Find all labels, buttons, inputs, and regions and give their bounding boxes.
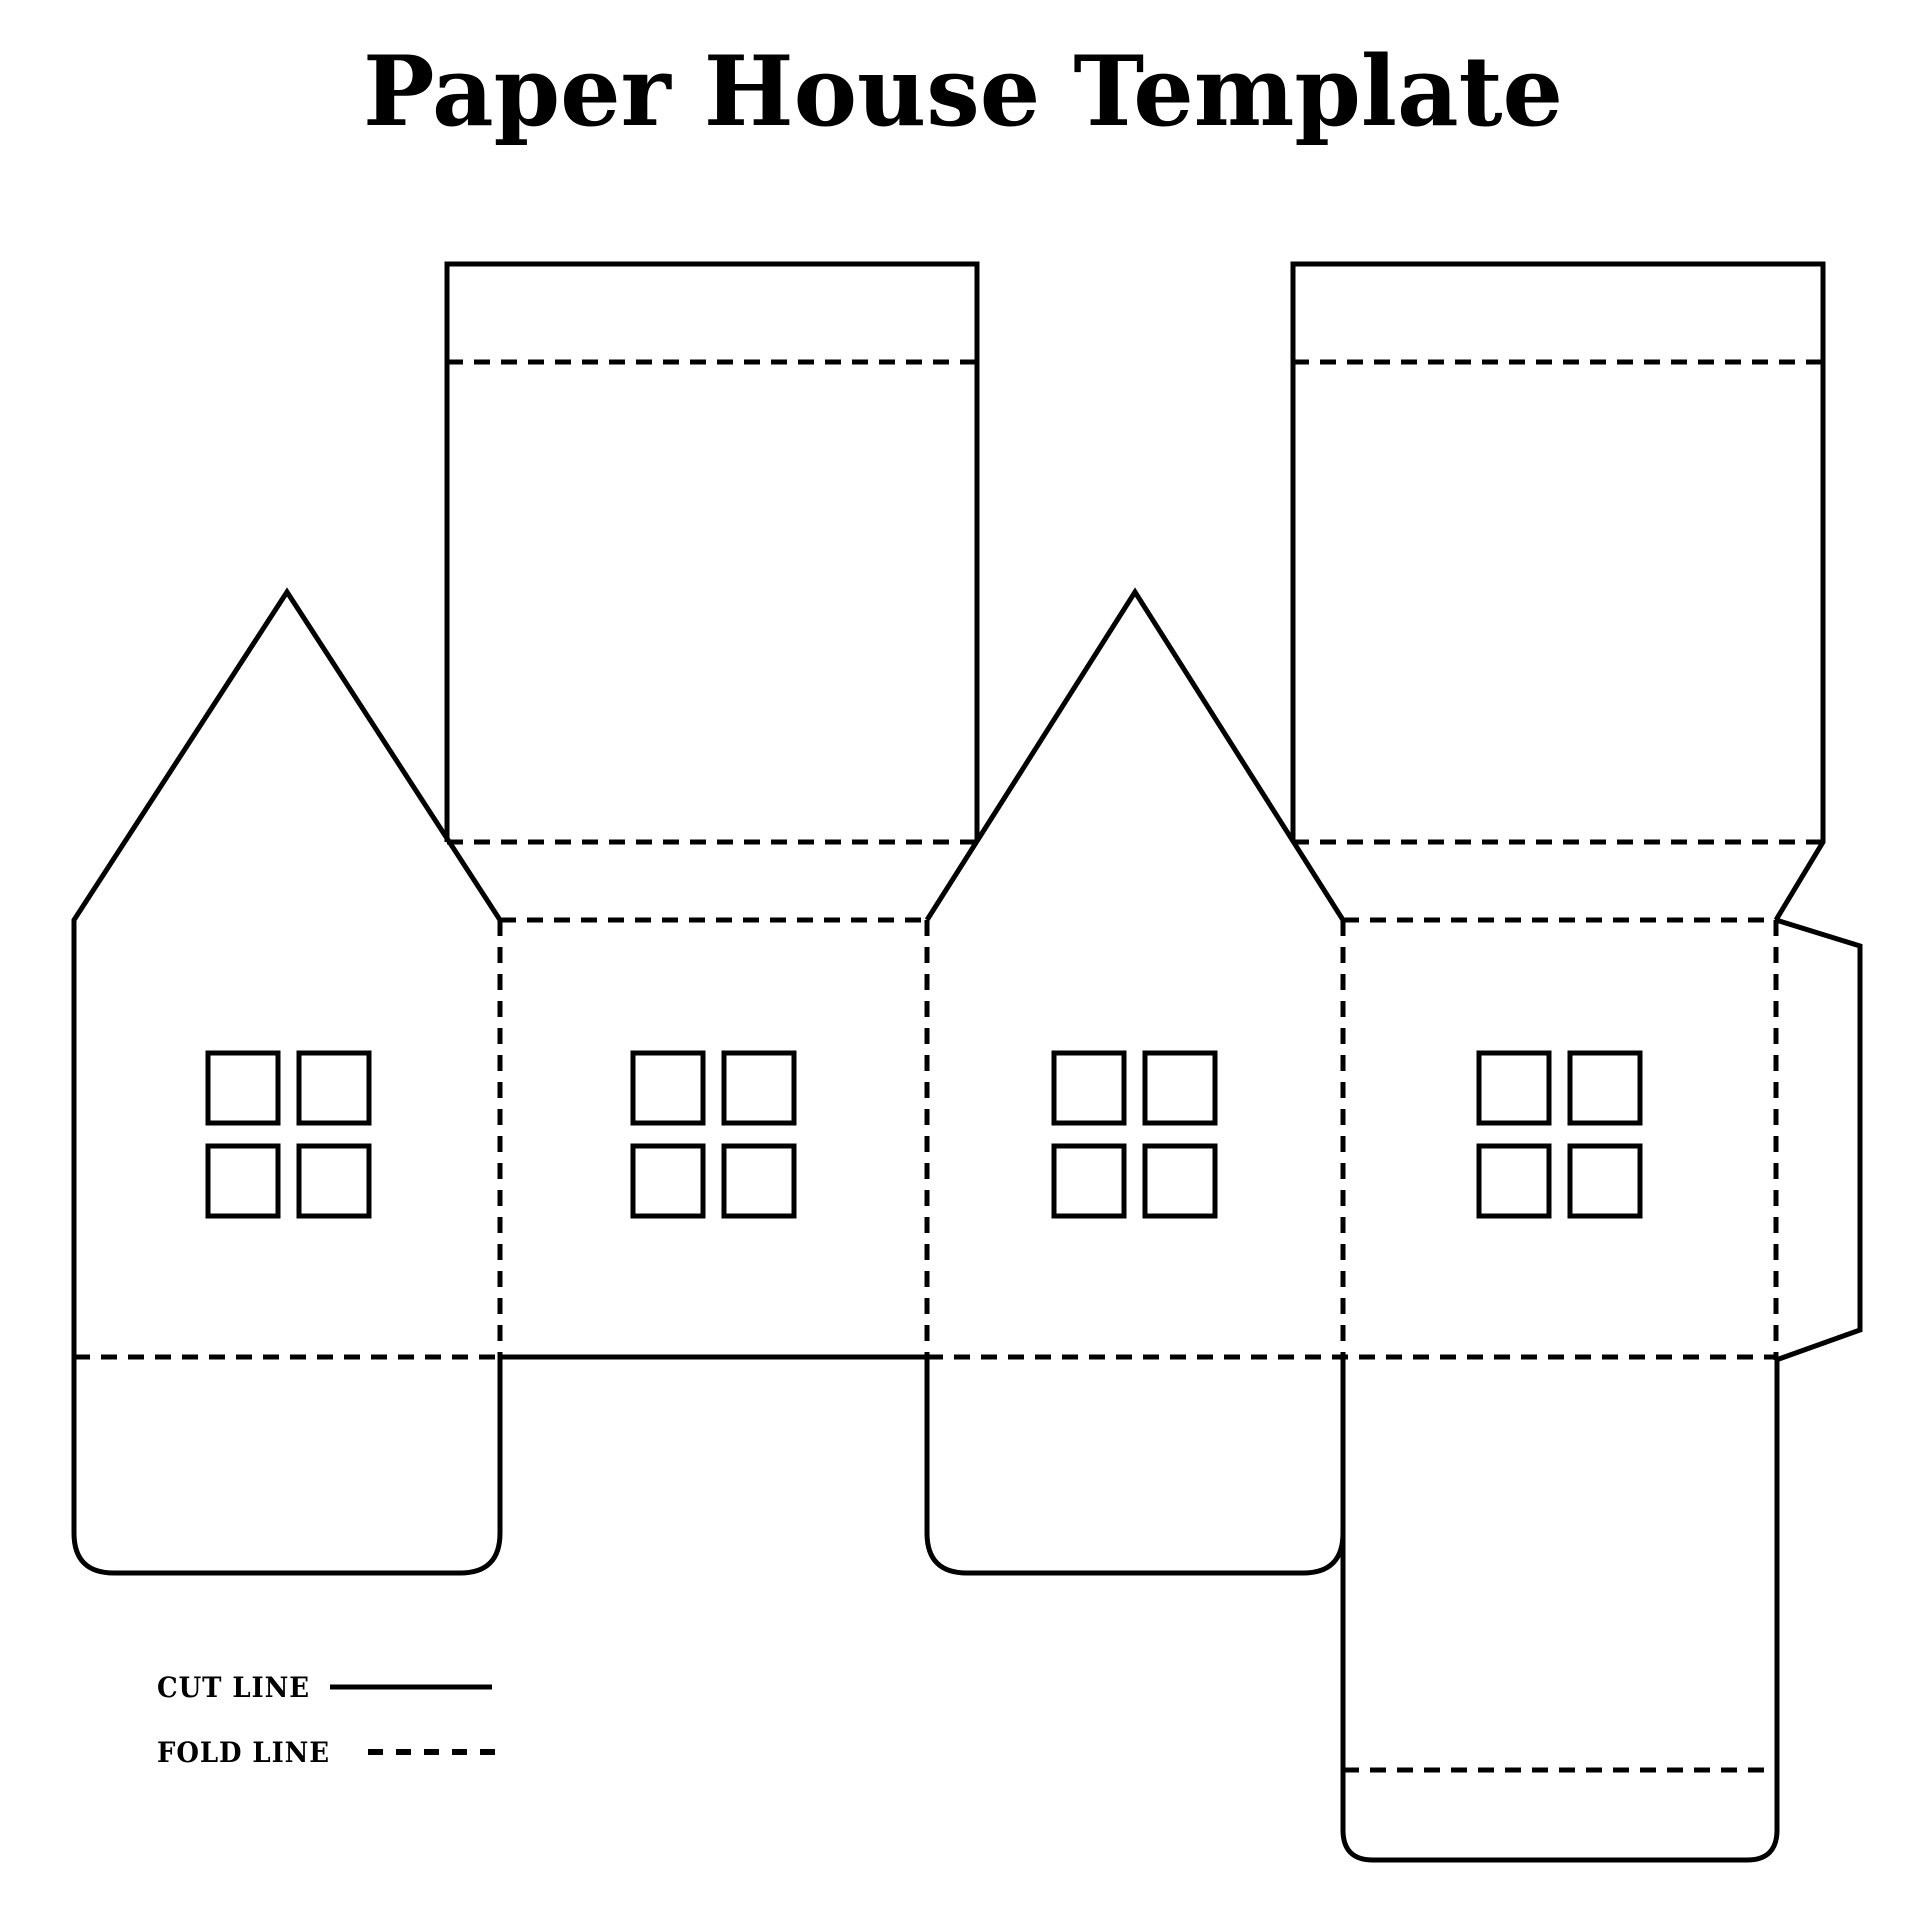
facade-1-window bbox=[208, 1053, 369, 1216]
wall-2-window bbox=[1479, 1053, 1640, 1216]
legend: CUT LINE FOLD LINE bbox=[157, 1671, 495, 1769]
page-title: Paper House Template bbox=[363, 35, 1563, 148]
roof-flap-1-outline bbox=[447, 264, 977, 842]
window-pane bbox=[1054, 1146, 1124, 1216]
legend-cut-label: CUT LINE bbox=[157, 1671, 310, 1704]
roof-flap-2-outline bbox=[1293, 264, 1823, 920]
window-pane bbox=[208, 1053, 278, 1123]
window-pane bbox=[208, 1146, 278, 1216]
window-pane bbox=[1570, 1053, 1640, 1123]
window-pane bbox=[1145, 1053, 1215, 1123]
window-pane bbox=[1479, 1146, 1549, 1216]
template-drawing: Paper House Template bbox=[0, 0, 1920, 1920]
fold-lines bbox=[74, 362, 1823, 1770]
cut-lines bbox=[74, 264, 1860, 1860]
paper-house-template-page: Paper House Template bbox=[0, 0, 1920, 1920]
window-pane bbox=[1479, 1053, 1549, 1123]
facade-2-roof-outline bbox=[927, 592, 1343, 920]
legend-fold-label: FOLD LINE bbox=[157, 1736, 330, 1769]
window-pane bbox=[299, 1146, 369, 1216]
window-pane bbox=[724, 1146, 794, 1216]
facade-1-outline bbox=[74, 592, 500, 1573]
window-pane bbox=[1054, 1053, 1124, 1123]
window-pane bbox=[1145, 1146, 1215, 1216]
window-pane bbox=[633, 1053, 703, 1123]
facade-2-window bbox=[1054, 1053, 1215, 1216]
floor-panel-outline bbox=[1343, 1357, 1777, 1860]
window-pane bbox=[633, 1146, 703, 1216]
window-pane bbox=[1570, 1146, 1640, 1216]
window-pane bbox=[299, 1053, 369, 1123]
window-pane bbox=[724, 1053, 794, 1123]
side-glue-tab bbox=[1776, 920, 1860, 1360]
facade-2-bottom-tab bbox=[927, 1357, 1343, 1573]
wall-1-window bbox=[633, 1053, 794, 1216]
